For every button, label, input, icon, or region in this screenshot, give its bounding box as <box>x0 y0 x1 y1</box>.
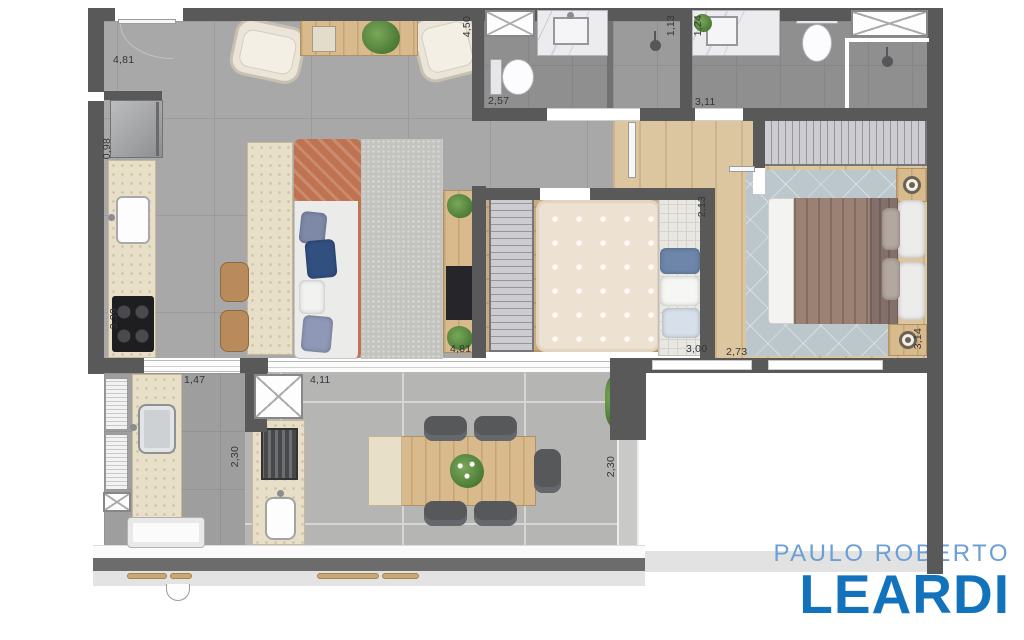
dining-chair <box>424 501 467 526</box>
wall-bottom-left-a <box>88 358 144 373</box>
bed-pillow <box>898 262 925 320</box>
sofa-throw <box>294 139 361 201</box>
living-rug <box>361 139 443 359</box>
dim-shower1-width: 1,13 <box>666 15 677 36</box>
grill-sink <box>265 497 296 540</box>
wood-slat <box>127 573 167 579</box>
barbecue-grill <box>261 428 298 480</box>
bar-stool <box>220 262 249 302</box>
hallway-door-leaf <box>628 122 636 178</box>
dim-master-width: 2,73 <box>726 347 747 358</box>
brand-logo-line2: LEARDI <box>773 569 1010 620</box>
dim-terrace-width: 4,11 <box>310 375 330 386</box>
bedroom2-door-opening <box>540 188 590 200</box>
bar-stool <box>220 310 249 352</box>
dining-chair <box>474 501 517 526</box>
wall-niche-gap <box>88 92 104 101</box>
dim-bath2-width: 3,11 <box>695 97 715 108</box>
dim-living-top: 4,81 <box>113 55 134 66</box>
wall-right <box>927 8 943 574</box>
shower-head <box>882 56 893 67</box>
wood-slat <box>170 573 192 579</box>
toilet-bowl <box>502 59 534 95</box>
dim-living-left-upper: 0,98 <box>102 138 113 159</box>
wall-bed2-top-a <box>472 188 540 200</box>
bed-pillow <box>898 200 925 258</box>
wood-slat <box>317 573 379 579</box>
bed-pillow <box>882 258 900 300</box>
dim-master-depth: 3,14 <box>913 328 924 349</box>
kitchen-sink <box>116 196 150 244</box>
duct-shaft <box>254 374 303 419</box>
dining-chair <box>424 416 467 441</box>
wall-bath-bottom-c <box>743 108 930 121</box>
laundry-faucet <box>130 424 137 431</box>
sofa-pillow <box>304 239 337 279</box>
console-plant <box>447 194 473 218</box>
bedroom2-rug <box>536 200 660 352</box>
shower2-glass <box>845 38 929 42</box>
wall-niche-stub <box>104 91 162 100</box>
wall-left <box>88 8 104 374</box>
dim-bedroom2-depth: 2,13 <box>697 196 708 217</box>
master-window <box>768 360 883 370</box>
console-plant <box>362 20 400 54</box>
master-door-leaf <box>729 166 755 172</box>
toilet-tank <box>490 59 502 95</box>
bathroom2-door-opening <box>695 108 743 121</box>
table-centerpiece <box>450 454 484 488</box>
living-floor-band <box>477 120 613 188</box>
armchair-cushion <box>237 28 298 76</box>
wall-bath-separator <box>680 8 692 121</box>
terrace-sliding-door <box>268 361 610 373</box>
dim-laundry-depth: 2,30 <box>230 446 241 467</box>
bathroom1-door-opening <box>547 108 640 121</box>
wall-bath1-left <box>472 8 484 121</box>
wall-hall-master-stub <box>753 116 765 170</box>
brand-logo: PAULO ROBERTO LEARDI <box>773 540 1010 620</box>
dim-bath2-left: 1,24 <box>693 15 704 36</box>
console-decor <box>312 26 336 52</box>
dim-laundry-width: 1,47 <box>184 375 205 386</box>
kitchen-faucet <box>108 214 115 221</box>
balcony-edge-dark <box>93 558 645 571</box>
dim-kitchen-left: 3,39 <box>109 308 120 329</box>
wall-bath-bottom-a <box>477 108 547 121</box>
shower2-glass <box>845 38 849 108</box>
master-bed-sheet <box>768 198 794 324</box>
dim-terrace-depth: 2,30 <box>606 456 617 477</box>
floor-plan: 4,81 0,98 3,39 4,50 2,57 1,13 1,24 3,11 … <box>0 0 1024 640</box>
bed-pillow <box>660 276 700 306</box>
sofa-pillow <box>299 280 325 314</box>
bed-pillow <box>662 308 700 338</box>
dim-bath1-width: 2,57 <box>488 96 509 107</box>
master-wardrobe <box>763 116 927 166</box>
wall-living-bed2 <box>472 186 486 358</box>
sofa-pillow <box>300 315 333 353</box>
bedroom2-wardrobe <box>489 198 534 352</box>
master-bed-blanket <box>794 198 870 324</box>
washing-machine <box>127 517 205 548</box>
grill-faucet <box>277 490 284 497</box>
dim-living-right: 4,50 <box>462 16 473 37</box>
dim-living-bottom: 4,81 <box>450 344 471 355</box>
wood-slat <box>382 573 419 579</box>
master-window <box>652 360 752 370</box>
bathroom1-sink <box>553 17 589 45</box>
kitchen-island <box>247 142 293 355</box>
shaft-cabinet <box>485 10 535 37</box>
laundry-shaft <box>103 492 131 512</box>
fridge-handle <box>156 102 159 156</box>
shaft-cabinet <box>851 10 928 37</box>
toilet-bowl <box>802 24 832 62</box>
bathroom1-faucet <box>567 12 574 19</box>
laundry-louver-door <box>105 434 128 490</box>
bed-pillow <box>660 248 700 274</box>
dining-chair <box>474 416 517 441</box>
laundry-louver-door <box>105 378 128 430</box>
tv <box>446 266 474 320</box>
wall-terrace-stub <box>610 358 646 440</box>
dining-chair <box>534 449 561 493</box>
table-runner <box>368 436 402 506</box>
nightstand-lamp <box>903 176 921 194</box>
laundry-sink <box>138 404 176 454</box>
laundry-window <box>144 360 240 372</box>
shower-head <box>650 40 661 51</box>
dim-bedroom2-width: 3,00 <box>686 344 707 355</box>
bed-pillow <box>882 208 900 250</box>
wall-sconce <box>166 584 190 601</box>
